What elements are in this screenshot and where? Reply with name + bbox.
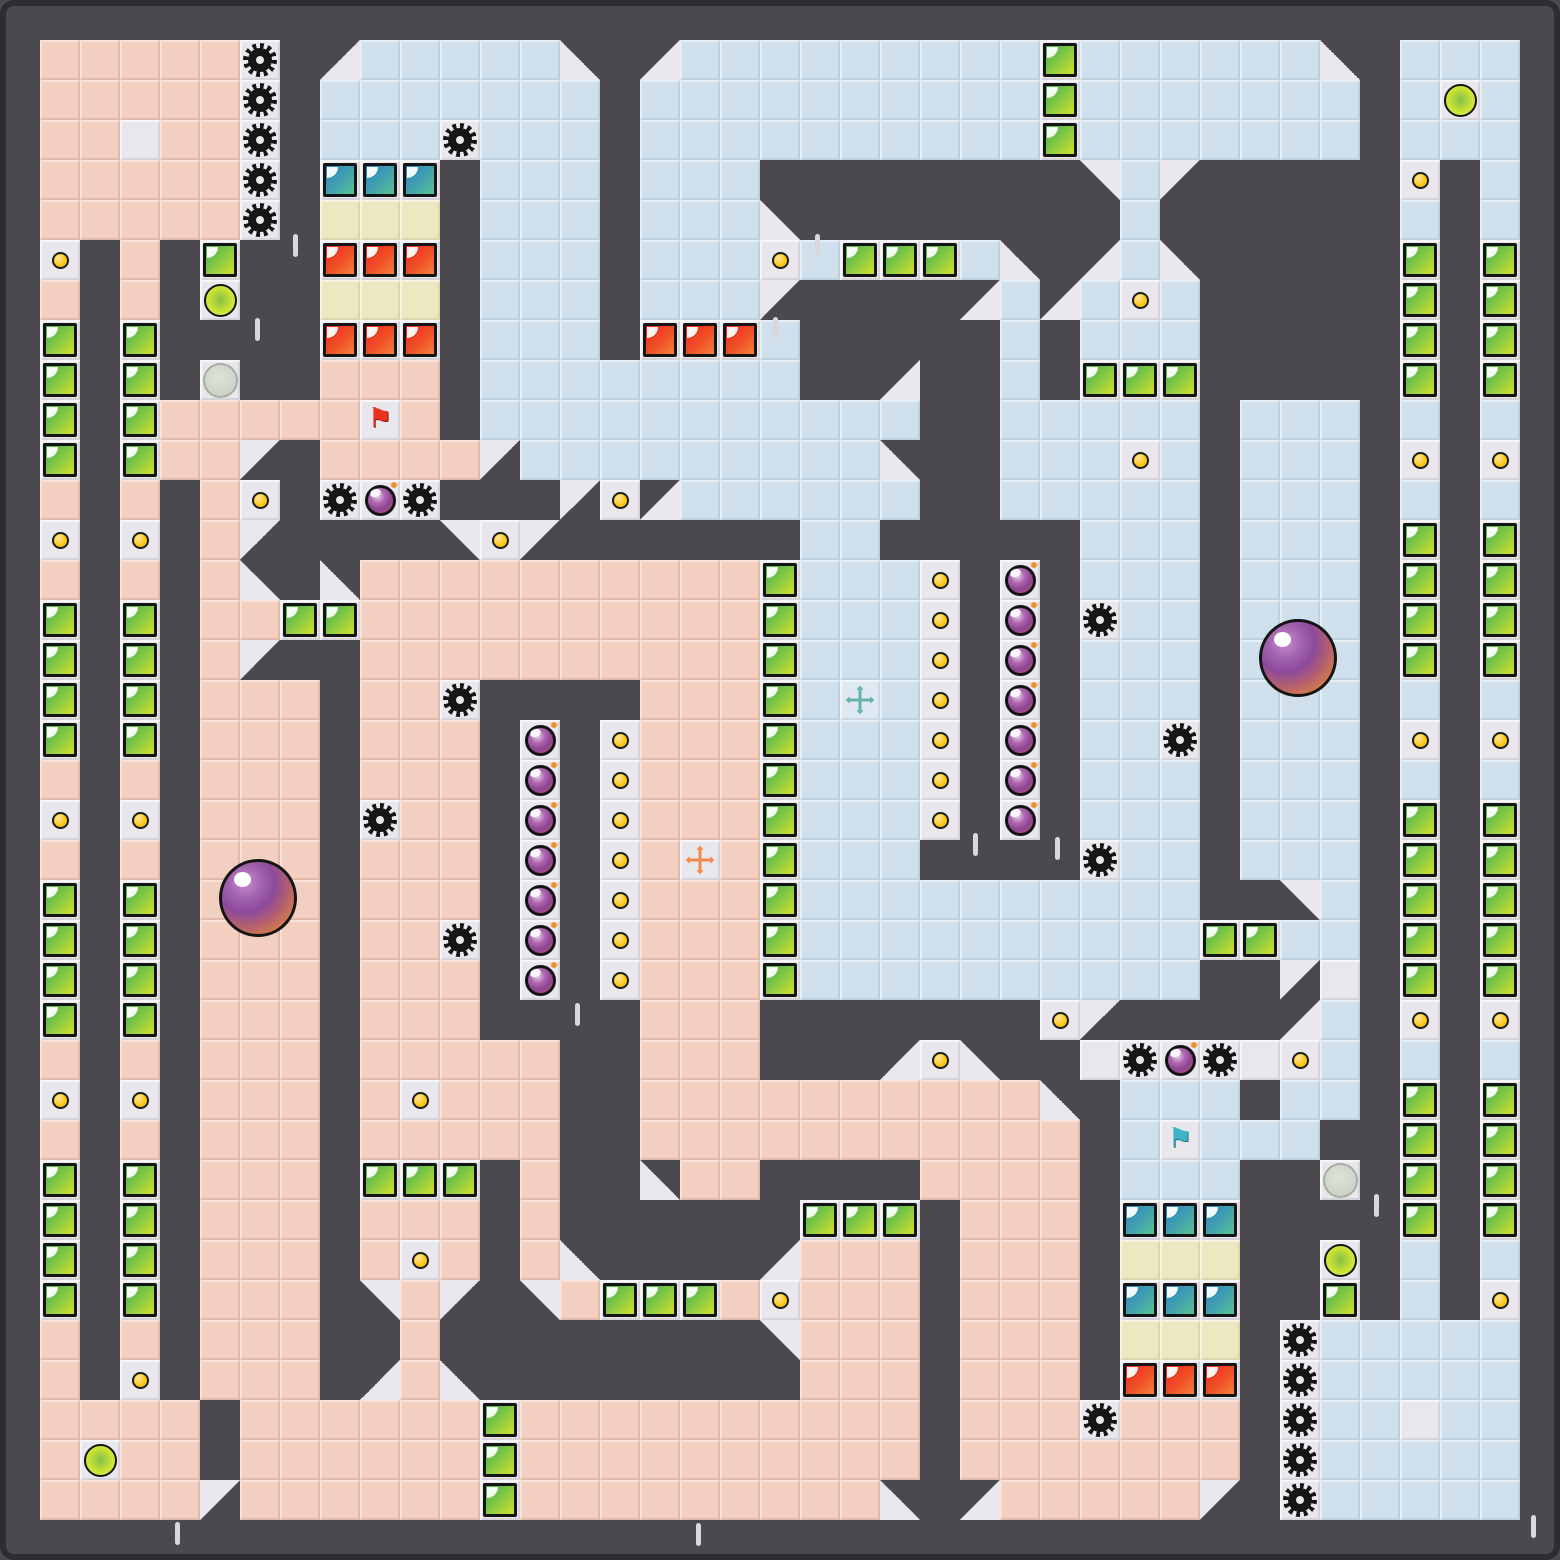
diagonal-wall-tile [960,280,1000,320]
green-box[interactable] [1403,843,1437,877]
coin[interactable] [52,812,69,829]
white-tile [1240,1040,1280,1080]
cyan-box[interactable] [1203,1203,1237,1237]
green-box[interactable] [1483,1083,1517,1117]
coin-slot [1120,280,1160,320]
gear-icon[interactable] [1163,723,1197,757]
goal-ball[interactable] [1444,84,1477,117]
floor-tile-blue [400,40,440,80]
floor-tile-blue [960,880,1000,920]
floor-tile-blue [1120,160,1160,200]
green-box[interactable] [123,1003,157,1037]
large-marble[interactable] [219,859,297,937]
red-box[interactable] [363,243,397,277]
box-slot [720,320,760,360]
floor-tile-blue [1080,880,1120,920]
coin[interactable] [132,812,149,829]
cyan-box[interactable] [1203,1283,1237,1317]
floor-tile-blue [680,160,720,200]
floor-tile-blue [480,200,520,240]
goal-ball[interactable] [204,284,237,317]
floor-tile-pink [800,1280,840,1320]
coin-slot [40,240,80,280]
gear-icon[interactable] [1083,603,1117,637]
cyan-box[interactable] [1163,1283,1197,1317]
green-box[interactable] [123,683,157,717]
gear-icon[interactable] [443,923,477,957]
gear-icon[interactable] [243,43,277,77]
coin[interactable] [412,1092,429,1109]
green-box[interactable] [1483,923,1517,957]
cyan-box[interactable] [323,163,357,197]
coin[interactable] [492,532,509,549]
red-box[interactable] [403,323,437,357]
green-box[interactable] [203,243,237,277]
coin[interactable] [932,612,949,629]
green-box[interactable] [43,963,77,997]
floor-tile-pink [1000,1280,1040,1320]
green-box[interactable] [1403,923,1437,957]
coin[interactable] [932,652,949,669]
green-box[interactable] [123,963,157,997]
red-box[interactable] [323,323,357,357]
coin[interactable] [132,532,149,549]
floor-tile-pink [360,1120,400,1160]
coin[interactable] [1492,732,1509,749]
floor-tile-blue [1480,80,1520,120]
floor-tile-blue [1160,600,1200,640]
goal-ball[interactable] [84,1444,117,1477]
box-slot [1480,640,1520,680]
green-box[interactable] [43,923,77,957]
green-box[interactable] [43,1203,77,1237]
coin[interactable] [612,892,629,909]
floor-tile-pink [1120,1440,1160,1480]
red-box[interactable] [1203,1363,1237,1397]
green-box[interactable] [1483,1163,1517,1197]
coin[interactable] [1052,1012,1069,1029]
green-box[interactable] [803,1203,837,1237]
green-box[interactable] [1483,803,1517,837]
bomb[interactable] [1005,565,1036,596]
green-box[interactable] [1483,883,1517,917]
green-box[interactable] [763,883,797,917]
coin[interactable] [412,1252,429,1269]
floor-tile-blue [1120,760,1160,800]
green-box[interactable] [1483,843,1517,877]
red-box[interactable] [323,243,357,277]
green-box[interactable] [483,1483,517,1517]
floor-tile-blue [1160,520,1200,560]
green-box[interactable] [923,243,957,277]
coin[interactable] [932,572,949,589]
coin[interactable] [1492,1292,1509,1309]
green-box[interactable] [643,1283,677,1317]
gear-icon[interactable] [323,483,357,517]
gear-icon[interactable] [1283,1483,1317,1517]
coin[interactable] [1292,1052,1309,1069]
box-slot [1040,80,1080,120]
green-box[interactable] [1483,243,1517,277]
green-box[interactable] [123,363,157,397]
green-box[interactable] [123,723,157,757]
green-box[interactable] [43,1003,77,1037]
green-box[interactable] [1043,43,1077,77]
floor-tile-blue [720,40,760,80]
green-box[interactable] [123,923,157,957]
floor-tile-pink [360,840,400,880]
floor-tile-blue [1120,1120,1160,1160]
green-box[interactable] [763,803,797,837]
cyan-box[interactable] [1163,1203,1197,1237]
red-box[interactable] [643,323,677,357]
green-box[interactable] [763,723,797,757]
wall-notch [696,1523,701,1546]
coin[interactable] [612,932,629,949]
box-slot [760,560,800,600]
large-marble[interactable] [1259,619,1337,697]
green-box[interactable] [1203,923,1237,957]
green-box[interactable] [43,403,77,437]
floor-tile-blue [1440,1320,1480,1360]
gear-icon[interactable] [243,83,277,117]
floor-tile-blue [920,960,960,1000]
box-slot [1400,1080,1440,1120]
floor-tile-pink [160,1400,200,1440]
cyan-box[interactable] [1123,1283,1157,1317]
green-box[interactable] [483,1443,517,1477]
floor-tile-pink [400,840,440,880]
green-box[interactable] [1483,563,1517,597]
green-box[interactable] [1403,283,1437,317]
green-box[interactable] [1483,603,1517,637]
green-box[interactable] [1403,363,1437,397]
floor-tile-blue [680,80,720,120]
teal-flag-icon[interactable]: ⚑ [1168,1125,1192,1152]
box-slot [1480,840,1520,880]
coin[interactable] [932,732,949,749]
green-box[interactable] [43,683,77,717]
green-box[interactable] [1403,1203,1437,1237]
bomb[interactable] [525,805,556,836]
floor-tile-pink [600,600,640,640]
floor-tile-blue [1400,680,1440,720]
red-box[interactable] [1163,1363,1197,1397]
red-box[interactable] [683,323,717,357]
floor-tile-pink [680,720,720,760]
floor-tile-pink [800,1080,840,1120]
floor-tile-pink [200,80,240,120]
green-box[interactable] [1403,883,1437,917]
green-box[interactable] [123,323,157,357]
gear-icon[interactable] [1283,1403,1317,1437]
floor-tile-pink [800,1480,840,1520]
coin[interactable] [932,812,949,829]
red-box[interactable] [1123,1363,1157,1397]
coin[interactable] [1412,732,1429,749]
green-box[interactable] [1403,523,1437,557]
bomb[interactable] [1005,725,1036,756]
floor-tile-pink [720,1280,760,1320]
coin-slot [1480,720,1520,760]
coin[interactable] [932,692,949,709]
green-box[interactable] [323,603,357,637]
green-box[interactable] [443,1163,477,1197]
gear-icon[interactable] [243,163,277,197]
coin[interactable] [52,252,69,269]
floor-tile-blue [1320,520,1360,560]
green-box[interactable] [883,1203,917,1237]
coin[interactable] [612,732,629,749]
green-box[interactable] [1403,323,1437,357]
green-box[interactable] [1403,963,1437,997]
floor-tile-pink [800,1440,840,1480]
green-box[interactable] [1083,363,1117,397]
cyan-box[interactable] [1123,1203,1157,1237]
coin[interactable] [52,1092,69,1109]
gear-icon[interactable] [1283,1443,1317,1477]
green-box[interactable] [1483,1123,1517,1157]
red-flag-icon[interactable]: ⚑ [368,405,392,432]
floor-tile-blue [1320,1080,1360,1120]
green-box[interactable] [363,1163,397,1197]
red-box[interactable] [363,323,397,357]
gray-marble[interactable] [1323,1163,1358,1198]
green-box[interactable] [1403,1123,1437,1157]
diagonal-wall-tile [240,560,280,600]
coin[interactable] [772,252,789,269]
green-box[interactable] [1323,1283,1357,1317]
green-box[interactable] [123,883,157,917]
gear-icon[interactable] [243,123,277,157]
green-box[interactable] [1123,363,1157,397]
green-box[interactable] [43,1283,77,1317]
gear-slot [1280,1360,1320,1400]
green-box[interactable] [883,243,917,277]
cyan-box[interactable] [403,163,437,197]
green-box[interactable] [1483,363,1517,397]
coin[interactable] [252,492,269,509]
floor-tile-blue [1000,480,1040,520]
green-box[interactable] [603,1283,637,1317]
green-box[interactable] [403,1163,437,1197]
bomb[interactable] [1005,765,1036,796]
coin[interactable] [612,492,629,509]
floor-tile-pink [640,1080,680,1120]
bomb[interactable] [525,765,556,796]
bomb[interactable] [525,845,556,876]
green-box[interactable] [763,963,797,997]
green-box[interactable] [1403,603,1437,637]
green-box[interactable] [1043,123,1077,157]
green-box[interactable] [763,603,797,637]
green-box[interactable] [1483,1203,1517,1237]
coin[interactable] [612,972,629,989]
red-box[interactable] [723,323,757,357]
red-box[interactable] [403,243,437,277]
move-cross-teal-icon[interactable] [845,685,875,715]
green-box[interactable] [763,563,797,597]
green-box[interactable] [1403,563,1437,597]
coin[interactable] [612,852,629,869]
green-box[interactable] [1403,803,1437,837]
floor-tile-pink [200,200,240,240]
box-slot [360,240,400,280]
cyan-box[interactable] [363,163,397,197]
gear-icon[interactable] [403,483,437,517]
bomb[interactable] [365,485,396,516]
goal-ball[interactable] [1324,1244,1357,1277]
green-box[interactable] [1483,643,1517,677]
floor-tile-blue [1240,400,1280,440]
green-box[interactable] [763,923,797,957]
green-box[interactable] [123,643,157,677]
green-box[interactable] [123,1163,157,1197]
green-box[interactable] [1483,283,1517,317]
green-box[interactable] [1243,923,1277,957]
floor-tile-pink [160,200,200,240]
green-box[interactable] [283,603,317,637]
wall-notch [1374,1194,1379,1217]
coin[interactable] [932,1052,949,1069]
cream-tile [1160,1320,1200,1360]
coin[interactable] [1492,1012,1509,1029]
gear-icon[interactable] [443,683,477,717]
gear-icon[interactable] [1083,843,1117,877]
bomb[interactable] [1005,605,1036,636]
bomb[interactable] [1165,1045,1196,1076]
floor-tile-blue [880,560,920,600]
coin[interactable] [52,532,69,549]
box-slot [1400,640,1440,680]
box-slot [760,760,800,800]
floor-tile-blue [800,120,840,160]
coin[interactable] [1132,292,1149,309]
green-box[interactable] [43,643,77,677]
bomb[interactable] [1005,805,1036,836]
box-slot [120,960,160,1000]
floor-tile-pink [560,1480,600,1520]
floor-tile-blue [1160,40,1200,80]
floor-tile-blue [1120,840,1160,880]
floor-tile-pink [640,560,680,600]
green-box[interactable] [1483,323,1517,357]
floor-tile-pink [40,1040,80,1080]
gray-marble[interactable] [203,363,238,398]
gear-icon[interactable] [243,203,277,237]
coin[interactable] [772,1292,789,1309]
marble-slot [1320,1160,1360,1200]
bomb[interactable] [1005,645,1036,676]
gear-icon[interactable] [1283,1363,1317,1397]
green-box[interactable] [43,323,77,357]
coin[interactable] [1492,452,1509,469]
green-box[interactable] [123,1243,157,1277]
green-box[interactable] [43,443,77,477]
coin[interactable] [612,812,629,829]
green-box[interactable] [43,723,77,757]
green-box[interactable] [1403,643,1437,677]
floor-tile-pink [1000,1240,1040,1280]
green-box[interactable] [43,1163,77,1197]
bomb[interactable] [525,925,556,956]
coin[interactable] [1412,452,1429,469]
gear-icon[interactable] [1203,1043,1237,1077]
coin[interactable] [1132,452,1149,469]
diagonal-wall-tile [880,360,920,400]
green-box[interactable] [763,843,797,877]
green-box[interactable] [763,763,797,797]
floor-tile-blue [960,40,1000,80]
floor-tile-blue [800,520,840,560]
box-slot [800,1200,840,1240]
coin[interactable] [612,772,629,789]
floor-tile-pink [1040,1280,1080,1320]
green-box[interactable] [43,603,77,637]
green-box[interactable] [763,683,797,717]
green-box[interactable] [123,1203,157,1237]
green-box[interactable] [843,1203,877,1237]
floor-tile-blue [920,920,960,960]
wall-notch [1531,1515,1536,1538]
move-cross-orange-icon[interactable] [685,845,715,875]
coin[interactable] [132,1372,149,1389]
diagonal-wall-tile [640,40,680,80]
green-box[interactable] [683,1283,717,1317]
green-box[interactable] [1043,83,1077,117]
green-box[interactable] [43,883,77,917]
bomb-slot [1000,680,1040,720]
green-box[interactable] [1403,1083,1437,1117]
bomb[interactable] [525,885,556,916]
green-box[interactable] [123,603,157,637]
green-box[interactable] [483,1403,517,1437]
coin[interactable] [932,772,949,789]
green-box[interactable] [1163,363,1197,397]
gear-icon[interactable] [443,123,477,157]
green-box[interactable] [843,243,877,277]
gear-icon[interactable] [1283,1323,1317,1357]
bomb[interactable] [525,965,556,996]
green-box[interactable] [123,443,157,477]
bomb[interactable] [1005,685,1036,716]
coin[interactable] [1412,1012,1429,1029]
coin[interactable] [132,1092,149,1109]
green-box[interactable] [1483,523,1517,557]
green-box[interactable] [123,403,157,437]
green-box[interactable] [763,643,797,677]
green-box[interactable] [1403,1163,1437,1197]
green-box[interactable] [43,363,77,397]
bomb[interactable] [525,725,556,756]
gear-icon[interactable] [1083,1403,1117,1437]
coin[interactable] [1412,172,1429,189]
floor-tile-blue [960,240,1000,280]
floor-tile-blue [800,720,840,760]
box-slot [1200,1360,1240,1400]
gear-icon[interactable] [1123,1043,1157,1077]
gear-icon[interactable] [363,803,397,837]
green-box[interactable] [123,1283,157,1317]
white-tile [1320,960,1360,1000]
green-box[interactable] [1483,963,1517,997]
floor-tile-blue [1080,640,1120,680]
bomb-slot [1000,560,1040,600]
green-box[interactable] [1403,243,1437,277]
floor-tile-blue [1080,480,1120,520]
green-box[interactable] [43,1243,77,1277]
diagonal-wall-tile [760,280,800,320]
